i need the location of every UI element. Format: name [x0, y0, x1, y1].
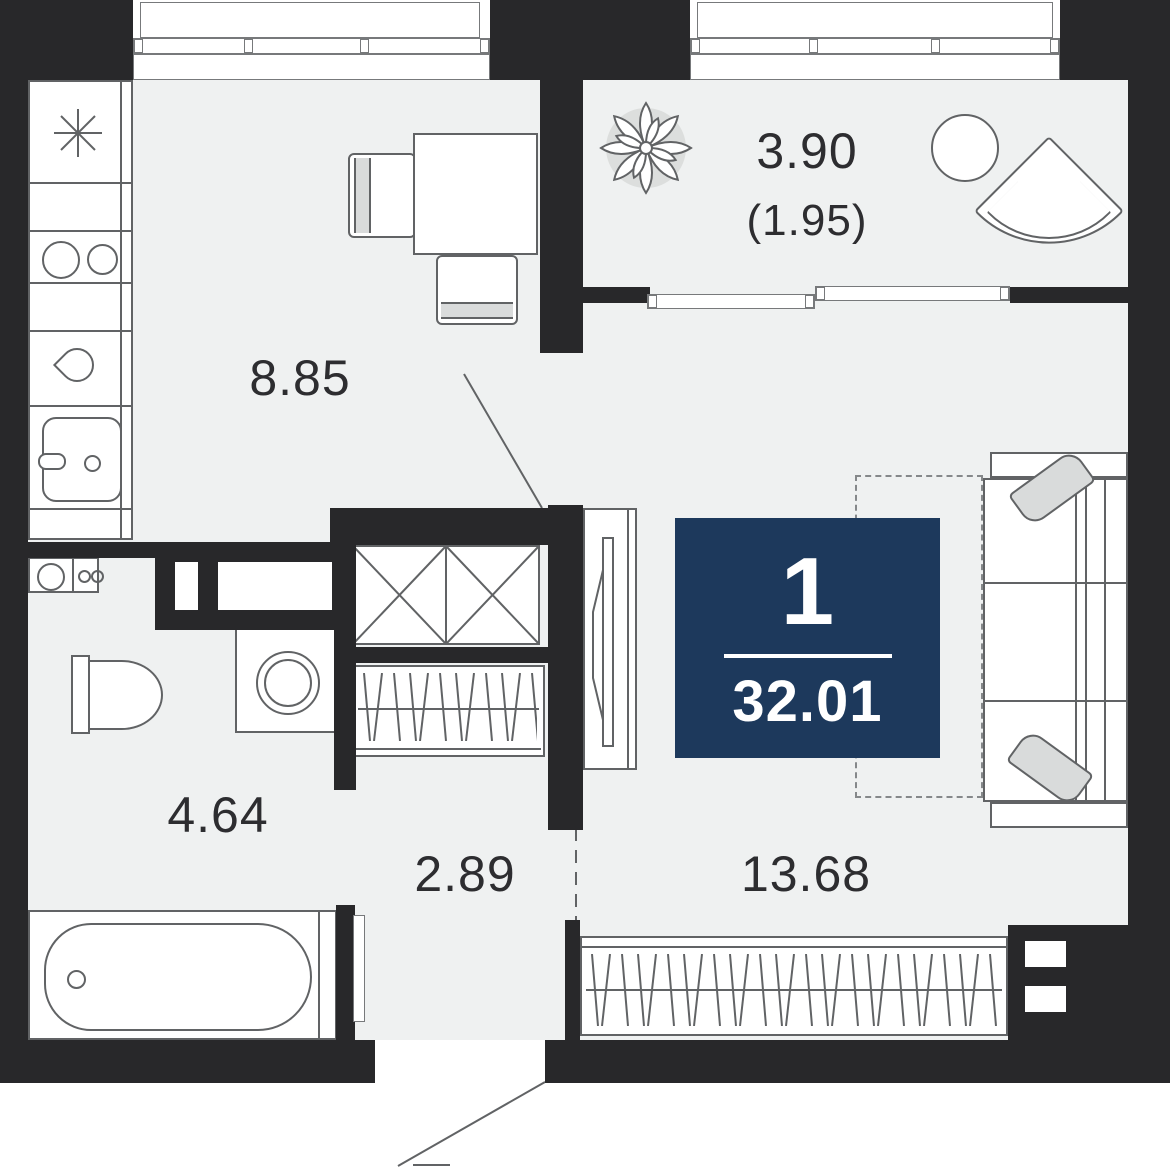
wall-top-right [1060, 0, 1170, 80]
washing-machine [235, 628, 337, 733]
sofa-armrest-bottom [990, 802, 1128, 828]
floor-plan: 8.85 3.90 (1.95) 4.64 2.89 13.68 1 32.01 [0, 0, 1170, 1170]
bathtub [28, 910, 337, 1040]
counter-divider [30, 330, 131, 332]
sofa-backrest-line [1085, 480, 1087, 800]
wall-bathroom-east-upper [334, 543, 356, 790]
window-mullion [134, 39, 143, 53]
counter-divider [30, 405, 131, 407]
wall-top-left-corner [0, 0, 133, 80]
wall-radiator-stub [565, 920, 580, 1040]
bathroom-door-leaf [353, 915, 365, 1022]
counter-divider [30, 508, 131, 510]
window-mullion [809, 39, 818, 53]
chair-back [441, 302, 513, 319]
washing-machine-drum-icon [264, 659, 312, 707]
tv-stand [583, 508, 637, 770]
window-mullion [360, 39, 369, 53]
washbasin-tap-icon [91, 570, 104, 583]
badge-divider [724, 654, 892, 658]
wall-below-wardrobe [352, 647, 548, 663]
glazing-cap [648, 295, 657, 308]
shaft-box-1 [1025, 941, 1066, 967]
kitchen-sink [42, 417, 122, 502]
wall-tv [548, 505, 583, 830]
glazing-cap [1000, 287, 1009, 300]
window-mullion [480, 39, 489, 53]
balcony-window-inner-sill [690, 54, 1060, 80]
balcony-glazing-right [815, 286, 1010, 301]
bathtub-drain-icon [67, 970, 86, 989]
cooktop-burner-icon [42, 241, 80, 279]
cooktop-burner-icon [87, 244, 118, 275]
sofa-backrest-line [1104, 480, 1106, 800]
kitchen-window-frame [133, 38, 490, 54]
tv-bracket [589, 570, 605, 720]
balcony-area-label: 3.90 [756, 122, 857, 180]
wall-kitchen-balcony-divider [540, 78, 583, 353]
window-mullion [1050, 39, 1059, 53]
wall-bottom-left [0, 1040, 375, 1083]
glazing-cap [805, 295, 814, 308]
glazing-cap [816, 287, 825, 300]
kitchen-window-outer-sill [140, 2, 480, 38]
hallway-area-label: 2.89 [414, 845, 515, 903]
balcony-reduced-area-label: (1.95) [747, 196, 868, 246]
sink-tap-icon [38, 453, 66, 470]
window-mullion [931, 39, 940, 53]
balcony-round-table [931, 114, 999, 182]
kitchen-window-inner-sill [133, 54, 490, 80]
dining-chair-bottom [436, 255, 518, 325]
apartment-info-badge: 1 32.01 [675, 518, 940, 758]
counter-divider [30, 282, 131, 284]
droplet-icon [53, 341, 101, 389]
radiator-band [580, 936, 1008, 1036]
dining-table [413, 133, 538, 255]
balcony-window-outer-sill [697, 2, 1053, 38]
wall-wardrobe-top [330, 508, 583, 545]
wall-balcony-partition-right [1010, 287, 1128, 303]
window-mullion [244, 39, 253, 53]
washbasin-bowl-icon [37, 563, 65, 591]
wall-niche-small [175, 562, 198, 610]
balcony-window-frame [690, 38, 1060, 54]
sink-drain-icon [84, 455, 101, 472]
washbasin [28, 557, 99, 593]
entrance-door-swing-line [398, 1082, 545, 1166]
counter-divider [30, 182, 131, 184]
wall-right [1128, 78, 1170, 1040]
hallway-coat-rack [352, 665, 545, 757]
wardrobe [352, 545, 540, 645]
tv-stand-edge [627, 510, 629, 768]
bathtub-divider [318, 912, 320, 1038]
kitchen-area-label: 8.85 [249, 349, 350, 407]
shaft-box-2 [1025, 986, 1066, 1012]
plant-icon [597, 99, 695, 197]
living-area-label: 13.68 [741, 845, 871, 903]
bathroom-area-label: 4.64 [167, 786, 268, 844]
balcony-glazing-left [647, 294, 815, 309]
washbasin-tap-icon [78, 570, 91, 583]
wall-top-middle [490, 0, 690, 80]
total-area: 32.01 [675, 668, 940, 735]
counter-divider [30, 230, 131, 232]
kitchen-asterisk-icon [50, 105, 106, 161]
room-count: 1 [675, 544, 940, 640]
dining-chair-left [348, 153, 416, 238]
chair-back [354, 158, 371, 233]
wall-balcony-partition-left [583, 287, 650, 303]
washbasin-divider [72, 559, 74, 591]
kitchen-counter [28, 80, 133, 540]
wall-niche-large [218, 562, 332, 610]
wall-left [0, 78, 28, 1040]
window-mullion [691, 39, 700, 53]
sofa-backrest-line [1075, 480, 1077, 800]
